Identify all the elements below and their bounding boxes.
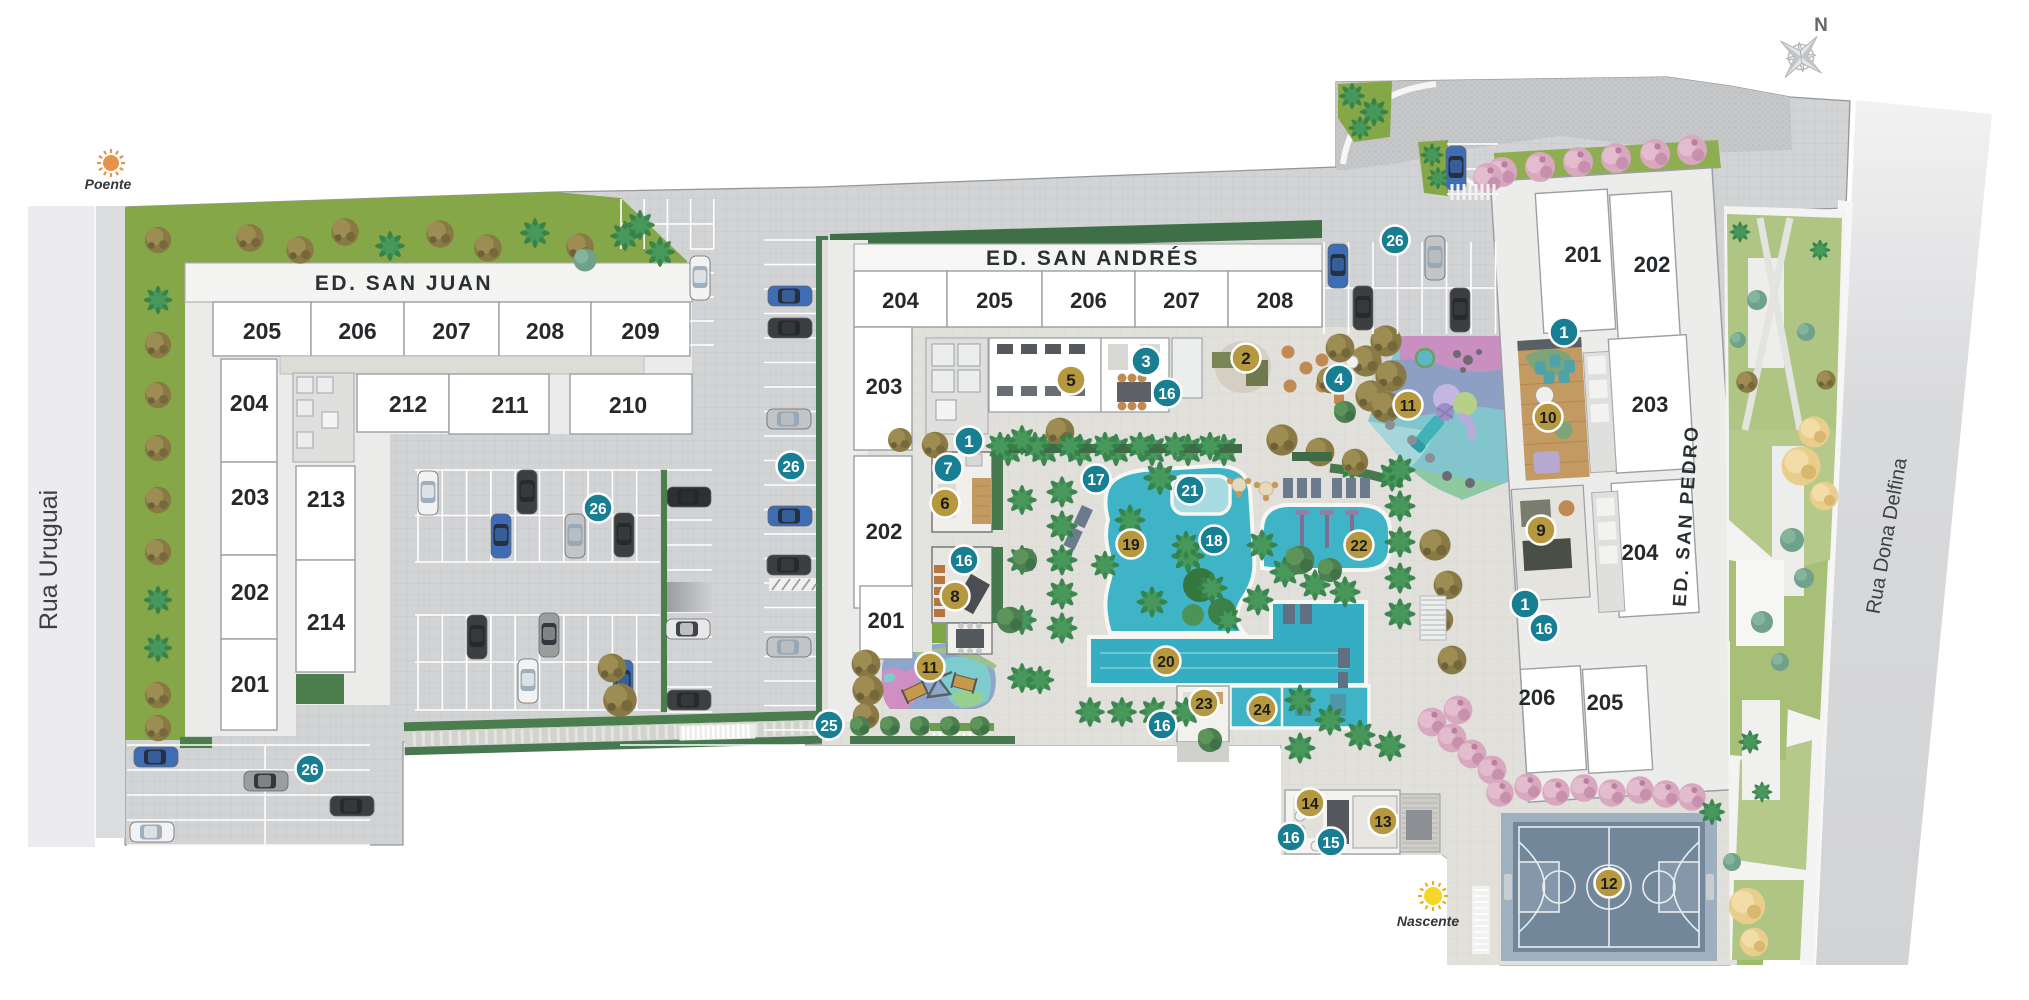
svg-text:16: 16	[1153, 718, 1171, 735]
svg-text:12: 12	[1600, 876, 1617, 893]
svg-text:204: 204	[882, 288, 919, 313]
svg-text:201: 201	[1565, 242, 1602, 267]
svg-text:8: 8	[950, 587, 959, 606]
svg-text:9: 9	[1536, 521, 1545, 540]
svg-text:6: 6	[940, 494, 949, 513]
svg-text:Poente: Poente	[85, 176, 132, 192]
svg-text:210: 210	[609, 392, 647, 418]
svg-text:11: 11	[922, 660, 939, 677]
svg-text:23: 23	[1195, 696, 1213, 713]
svg-text:206: 206	[1070, 288, 1107, 313]
svg-text:1: 1	[964, 432, 973, 451]
svg-text:Nascente: Nascente	[1397, 913, 1459, 929]
svg-text:N: N	[1814, 15, 1828, 36]
svg-text:22: 22	[1350, 538, 1367, 555]
svg-text:ED. SAN JUAN: ED. SAN JUAN	[315, 272, 493, 295]
svg-text:10: 10	[1539, 410, 1556, 427]
svg-text:207: 207	[1163, 288, 1200, 313]
svg-text:203: 203	[231, 484, 269, 510]
svg-text:26: 26	[782, 459, 800, 476]
svg-text:13: 13	[1374, 814, 1392, 831]
svg-text:206: 206	[1519, 685, 1556, 710]
svg-text:202: 202	[866, 519, 903, 544]
svg-text:20: 20	[1157, 654, 1174, 671]
svg-text:17: 17	[1087, 472, 1104, 489]
svg-text:11: 11	[1400, 398, 1417, 415]
svg-text:2: 2	[1241, 349, 1250, 368]
svg-text:1: 1	[1559, 323, 1568, 342]
svg-text:209: 209	[621, 318, 659, 344]
svg-text:26: 26	[1386, 233, 1404, 250]
svg-text:205: 205	[976, 288, 1013, 313]
svg-text:201: 201	[868, 608, 905, 633]
svg-text:24: 24	[1253, 702, 1271, 719]
svg-text:5: 5	[1066, 371, 1075, 390]
svg-text:1: 1	[1520, 595, 1529, 614]
svg-text:213: 213	[307, 486, 345, 512]
svg-text:202: 202	[231, 579, 269, 605]
svg-text:203: 203	[866, 374, 903, 399]
svg-text:26: 26	[589, 501, 607, 518]
svg-text:3: 3	[1141, 352, 1150, 371]
svg-text:14: 14	[1301, 796, 1319, 813]
svg-text:15: 15	[1322, 835, 1340, 852]
svg-text:204: 204	[230, 390, 269, 416]
svg-text:214: 214	[307, 609, 346, 635]
svg-text:16: 16	[955, 553, 973, 570]
svg-text:16: 16	[1158, 386, 1176, 403]
svg-text:212: 212	[389, 391, 427, 417]
svg-text:4: 4	[1334, 370, 1344, 389]
svg-text:206: 206	[338, 318, 376, 344]
svg-text:208: 208	[1257, 288, 1294, 313]
svg-text:25: 25	[820, 718, 838, 735]
svg-text:16: 16	[1535, 621, 1553, 638]
svg-text:205: 205	[1587, 690, 1624, 715]
svg-text:ED. SAN ANDRÉS: ED. SAN ANDRÉS	[986, 247, 1200, 270]
svg-text:208: 208	[526, 318, 565, 344]
svg-text:21: 21	[1181, 483, 1199, 500]
svg-text:204: 204	[1622, 540, 1659, 565]
svg-text:18: 18	[1205, 533, 1223, 550]
svg-text:19: 19	[1122, 537, 1140, 554]
svg-text:16: 16	[1282, 830, 1300, 847]
svg-text:26: 26	[301, 762, 319, 779]
svg-text:205: 205	[243, 318, 282, 344]
svg-text:207: 207	[432, 318, 470, 344]
svg-text:202: 202	[1634, 252, 1671, 277]
svg-text:7: 7	[943, 459, 952, 478]
svg-text:211: 211	[491, 392, 528, 418]
svg-text:Rua Uruguai: Rua Uruguai	[35, 490, 63, 630]
svg-text:203: 203	[1632, 392, 1669, 417]
svg-text:201: 201	[231, 671, 270, 697]
